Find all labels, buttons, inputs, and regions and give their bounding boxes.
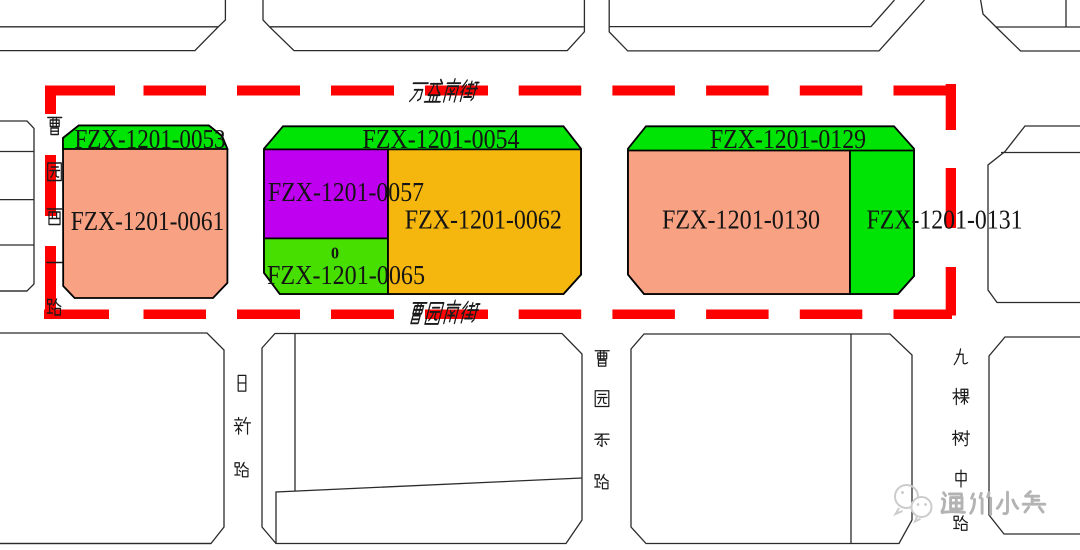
svg-text:FZX-1201-0131: FZX-1201-0131	[867, 205, 1023, 235]
svg-text:FZX-1201-0057: FZX-1201-0057	[268, 177, 424, 207]
svg-text:FZX-1201-0053: FZX-1201-0053	[75, 124, 226, 154]
svg-text:FZX-1201-0061: FZX-1201-0061	[71, 206, 225, 236]
svg-text:FZX-1201-0054: FZX-1201-0054	[363, 124, 520, 154]
svg-text:FZX-1201-0062: FZX-1201-0062	[405, 205, 562, 235]
svg-text:FZX-1201-0129: FZX-1201-0129	[710, 124, 866, 154]
svg-text:FZX-1201-0065: FZX-1201-0065	[267, 260, 425, 290]
svg-text:FZX-1201-0130: FZX-1201-0130	[662, 205, 820, 235]
